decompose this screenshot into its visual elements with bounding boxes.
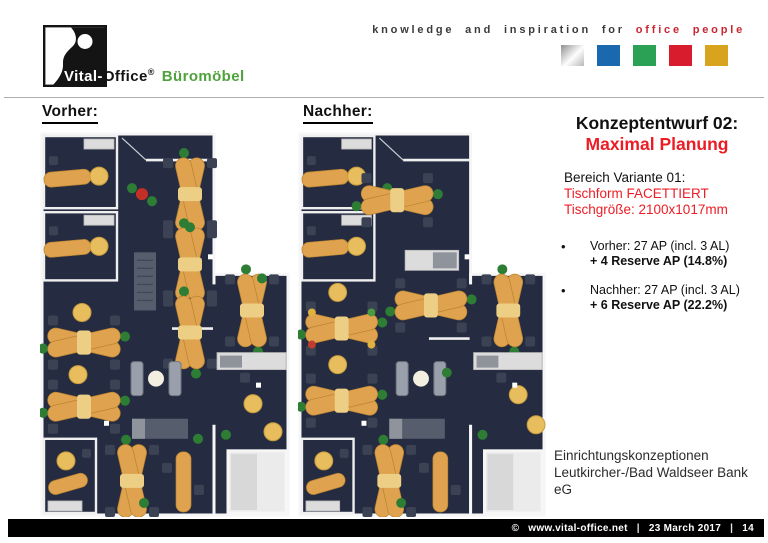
bullet-vorher-line1: Vorher: 27 AP (incl. 3 AL)	[590, 240, 762, 254]
client-line1: Einrichtungskonzeptionen	[554, 447, 764, 464]
footer-date: 23 March 2017	[649, 523, 721, 534]
header-divider	[4, 97, 764, 98]
variant-tischgroesse: Tischgröße: 2100x1017mm	[564, 202, 762, 218]
variant-tischform: Tischform FACETTIERT	[564, 186, 762, 202]
client-block: Einrichtungskonzeptionen Leutkircher-/Ba…	[554, 447, 764, 498]
square-silver	[561, 45, 584, 66]
logo-text: Vital-Office®Büromöbel	[64, 67, 245, 85]
footer-url: www.vital-office.net	[528, 523, 628, 534]
concept-title-block: Konzeptentwurf 02: Maximal Planung	[552, 113, 762, 155]
ap-bullet-list: Vorher: 27 AP (incl. 3 AL) + 4 Reserve A…	[552, 240, 762, 312]
footer-separator: |	[637, 523, 640, 534]
square-blue	[597, 45, 620, 66]
footer-separator: |	[730, 523, 733, 534]
logo-office: Office	[103, 68, 148, 85]
vorher-label: Vorher:	[42, 103, 98, 124]
bullet-nachher-line1: Nachher: 27 AP (incl. 3 AL)	[590, 284, 762, 298]
vital-office-logo: Vital-Office®Büromöbel	[43, 25, 283, 91]
nachher-label: Nachher:	[303, 103, 373, 124]
registered-mark: ®	[148, 67, 155, 77]
client-line3: eG	[554, 481, 764, 498]
page-number: 14	[742, 523, 754, 534]
logo-vital: Vital-	[64, 68, 103, 85]
variant-heading: Bereich Variante 01:	[564, 170, 762, 186]
square-green	[633, 45, 656, 66]
concept-subtitle: Maximal Planung	[552, 134, 762, 155]
info-panel: Konzeptentwurf 02: Maximal Planung Berei…	[552, 113, 762, 328]
square-red	[669, 45, 692, 66]
copyright-symbol: ©	[512, 523, 520, 534]
tagline-red: office people	[636, 24, 745, 36]
variant-block: Bereich Variante 01: Tischform FACETTIER…	[552, 170, 762, 218]
bullet-vorher-line2: + 4 Reserve AP (14.8%)	[590, 255, 762, 269]
vorher-floor-plan	[40, 132, 290, 517]
nachher-floor-plan	[298, 132, 546, 517]
bullet-nachher: Nachher: 27 AP (incl. 3 AL) + 6 Reserve …	[552, 284, 762, 312]
bullet-vorher: Vorher: 27 AP (incl. 3 AL) + 4 Reserve A…	[552, 240, 762, 268]
brand-color-squares	[561, 45, 728, 66]
concept-title: Konzeptentwurf 02:	[552, 113, 762, 134]
slide: Vital-Office®Büromöbel knowledge and ins…	[0, 0, 768, 543]
square-gold	[705, 45, 728, 66]
client-line2: Leutkircher-/Bad Waldseer Bank	[554, 464, 764, 481]
logo-bueromoebel: Büromöbel	[162, 68, 245, 85]
tagline: knowledge and inspiration for office peo…	[372, 24, 745, 36]
footer-bar: © www.vital-office.net | 23 March 2017 |…	[8, 519, 764, 537]
tagline-gray: knowledge and inspiration for	[372, 24, 625, 36]
bullet-nachher-line2: + 6 Reserve AP (22.2%)	[590, 299, 762, 313]
